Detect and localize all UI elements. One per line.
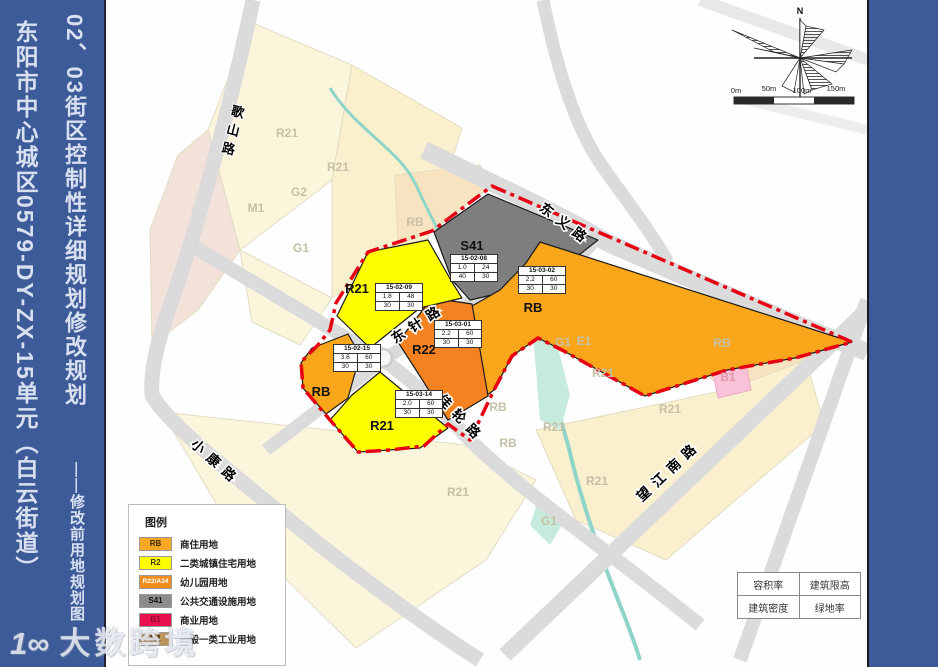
faded-label: R21 — [327, 160, 349, 174]
parcel-density: 30 — [435, 339, 459, 347]
title-sidebar: 东阳市中心城区0579-DY-ZX-15单元（白云街道） 02、03街区控制性详… — [0, 0, 106, 667]
parcel-density: 30 — [396, 409, 420, 417]
faded-label: G2 — [291, 185, 307, 199]
parcel-label-r21-lower: R21 — [370, 418, 394, 433]
parcel-green: 30 — [358, 363, 381, 371]
faded-label: G1 — [555, 335, 571, 349]
parcel-height: 60 — [358, 354, 381, 362]
parcel-table-15-03-14: 15-03-14 2.060 3030 — [395, 390, 443, 418]
parcel-id: 15-02-08 — [451, 255, 497, 264]
parcel-table-15-03-02: 15-03-02 2.260 3030 — [518, 266, 566, 294]
faded-label: R21 — [659, 402, 681, 416]
scale-bar: 0m 50m 100m 150m — [731, 84, 854, 104]
faded-label: R21 — [543, 420, 565, 434]
watermark-logo-icon: 1∞ — [10, 626, 49, 661]
legend-item-s41: S41 公共交通设施用地 — [139, 591, 285, 610]
parcel-height: 60 — [420, 400, 443, 408]
faded-label: G1 — [541, 514, 557, 528]
parcel-id: 15-03-14 — [396, 391, 442, 400]
parcel-density: 30 — [519, 285, 543, 293]
parcel-height: 60 — [543, 276, 566, 284]
faded-label: RB — [489, 400, 507, 414]
watermark: 1∞大数跨境 — [10, 618, 199, 663]
parcel-density: 30 — [334, 363, 358, 371]
plan-note: ——修改前用地规划图 — [66, 462, 87, 622]
parcel-label-r22: R22 — [412, 342, 436, 357]
key-far: 容积率 — [738, 573, 800, 596]
parcel-label-rb-main: RB — [524, 300, 543, 315]
legend-label: 二类城镇住宅用地 — [180, 556, 256, 570]
parcel-table-15-02-08: 15-02-08 1.024 4030 — [450, 254, 498, 282]
parcel-id: 15-02-09 — [376, 284, 422, 293]
legend-title: 图例 — [145, 514, 285, 530]
legend-item-rb: RB 商住用地 — [139, 534, 285, 553]
faded-label: G1 — [293, 241, 309, 255]
plan-subtitle: 东阳市中心城区0579-DY-ZX-15单元（白云街道） — [8, 20, 42, 581]
faded-label: B1 — [720, 370, 736, 384]
planning-map-page: 东阳市中心城区0579-DY-ZX-15单元（白云街道） 02、03街区控制性详… — [0, 0, 938, 667]
parcel-table-15-02-15: 15-02-15 3.660 3030 — [333, 344, 381, 372]
legend-chip-r22a34: R22/A34 — [139, 575, 172, 589]
scale-50: 50m — [762, 84, 777, 93]
key-height: 建筑限高 — [799, 573, 861, 596]
faded-label: R21 — [276, 126, 298, 140]
legend-label: 公共交通设施用地 — [180, 594, 256, 608]
parcel-far: 2.2 — [519, 276, 543, 284]
scale-150: 150m — [827, 84, 846, 93]
faded-label: RB — [713, 336, 731, 350]
parcel-label-s41: S41 — [460, 238, 483, 253]
parcel-green: 30 — [459, 339, 482, 347]
parcel-table-15-02-09: 15-02-09 1.848 3030 — [375, 283, 423, 311]
legend-chip-r2: R2 — [139, 556, 172, 570]
parcel-height: 48 — [400, 293, 423, 301]
parcel-green: 30 — [420, 409, 443, 417]
right-margin-bar — [867, 0, 938, 667]
parcel-density: 40 — [451, 273, 475, 281]
parcel-green: 30 — [543, 285, 566, 293]
plan-title: 02、03街区控制性详细规划修改规划 — [58, 14, 90, 407]
key-green: 绿地率 — [799, 596, 861, 619]
parcel-height: 60 — [459, 330, 482, 338]
legend-item-r2: R2 二类城镇住宅用地 — [139, 553, 285, 572]
map-canvas: R21 R21 G2 M1 G1 RB G1 E1 RB B1 R21 R21 … — [106, 0, 867, 667]
legend-chip-rb: RB — [139, 537, 172, 551]
parcel-density: 30 — [376, 302, 400, 310]
parcel-far: 1.8 — [376, 293, 400, 301]
legend-label: 商住用地 — [180, 537, 218, 551]
parcel-id: 15-03-02 — [519, 267, 565, 276]
faded-label: RB — [499, 436, 517, 450]
faded-label: RB — [406, 215, 424, 229]
north-label: N — [797, 6, 804, 16]
parcel-height: 24 — [475, 264, 498, 272]
parcel-label-r21-upper: R21 — [345, 281, 369, 296]
parcel-far: 3.6 — [334, 354, 358, 362]
parcel-far: 1.0 — [451, 264, 475, 272]
indicator-key-table: 容积率 建筑限高 建筑密度 绿地率 — [737, 572, 861, 619]
parcel-green: 30 — [475, 273, 498, 281]
faded-label: E1 — [577, 334, 592, 348]
legend-item-r22a34: R22/A34 幼儿园用地 — [139, 572, 285, 591]
faded-label: R21 — [586, 474, 608, 488]
key-density: 建筑密度 — [738, 596, 800, 619]
parcel-label-rb-small: RB — [312, 384, 331, 399]
scale-0: 0m — [731, 86, 741, 95]
parcel-far: 2.2 — [435, 330, 459, 338]
faded-label: R21 — [592, 366, 614, 380]
parcel-green: 30 — [400, 302, 423, 310]
parcel-table-15-03-01: 15-03-01 2.260 3030 — [434, 320, 482, 348]
parcel-far: 2.0 — [396, 400, 420, 408]
legend-chip-s41: S41 — [139, 594, 172, 608]
parcel-id: 15-02-15 — [334, 345, 380, 354]
scale-100: 100m — [793, 86, 812, 95]
faded-label: R21 — [447, 485, 469, 499]
parcel-id: 15-03-01 — [435, 321, 481, 330]
legend-label: 幼儿园用地 — [180, 575, 228, 589]
faded-label: M1 — [248, 201, 265, 215]
watermark-text: 大数跨境 — [59, 626, 199, 661]
